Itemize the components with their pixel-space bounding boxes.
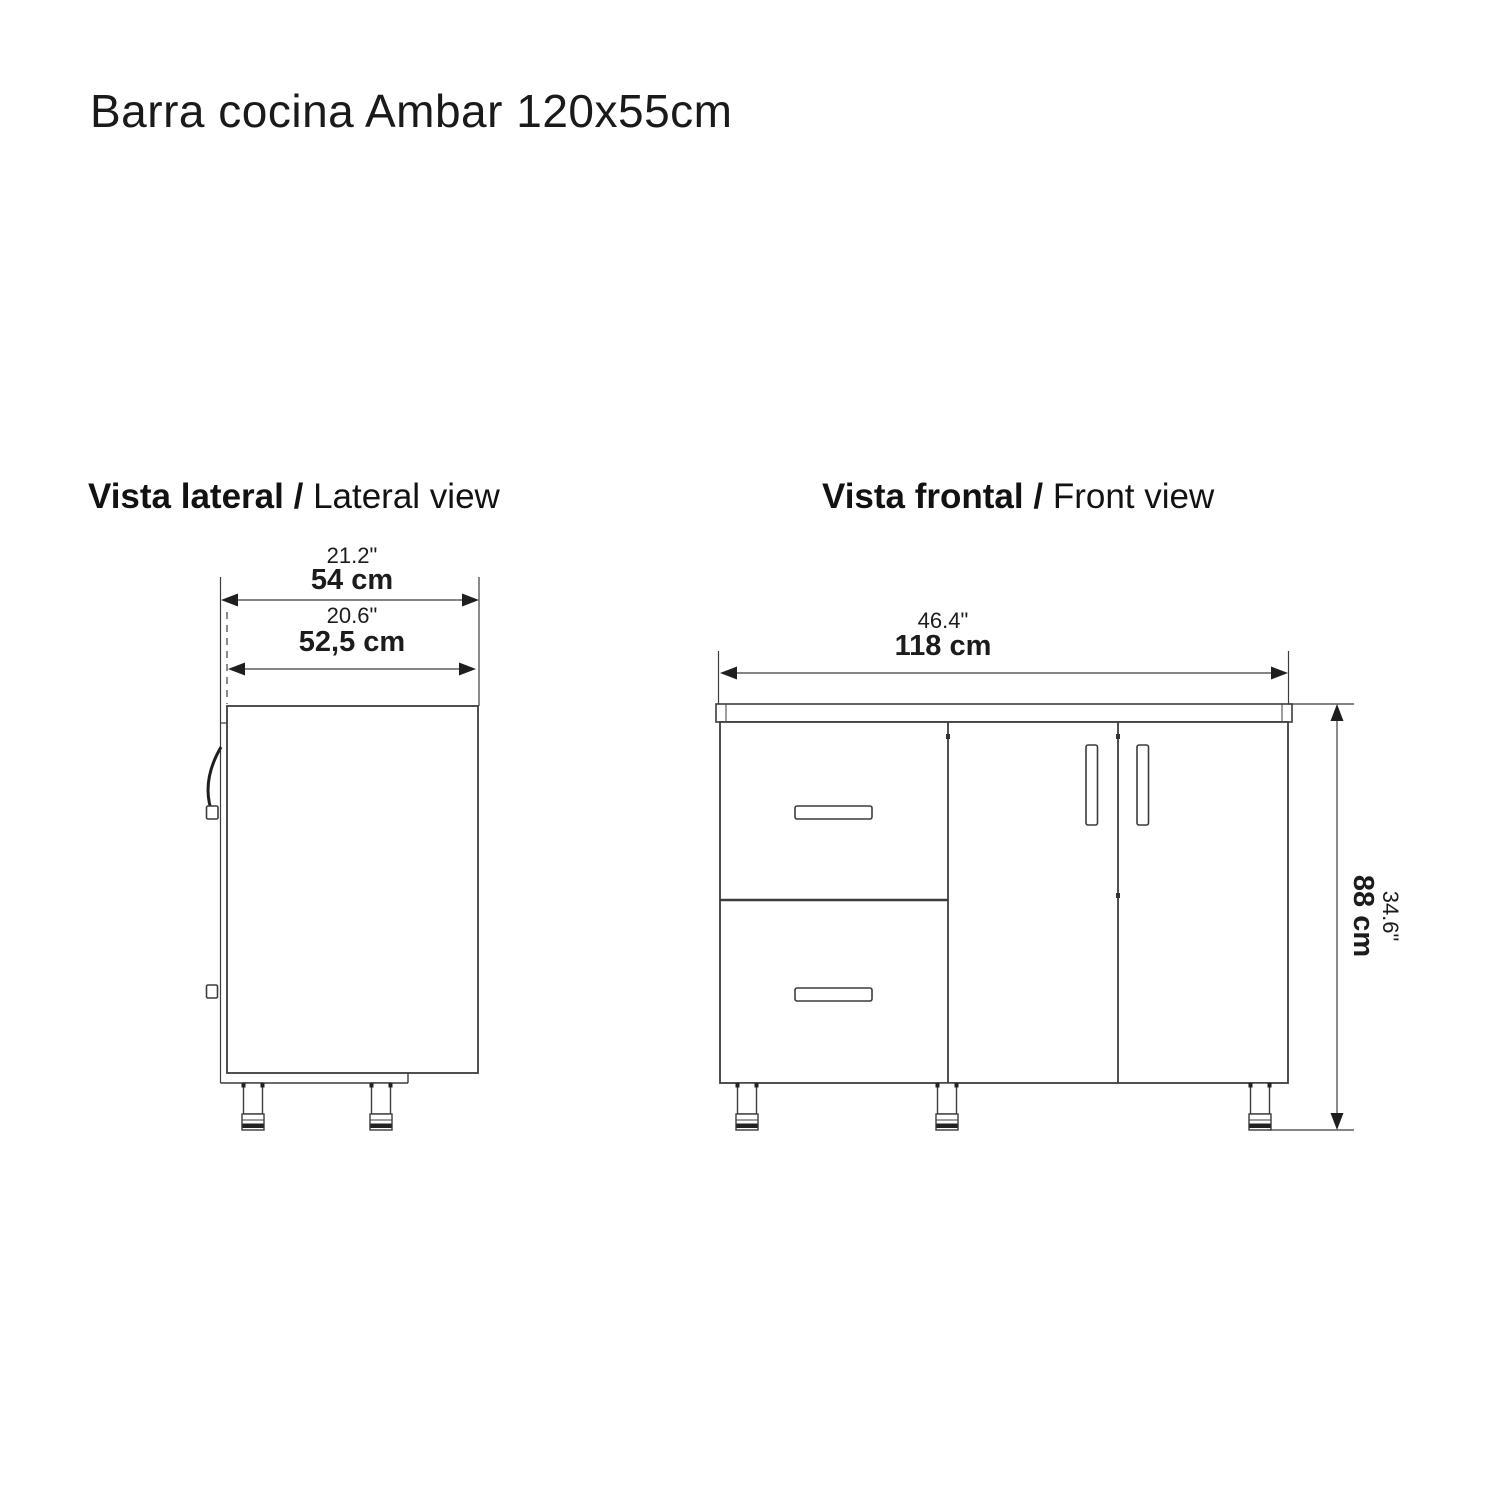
lateral-inner-depth-inches-label: 20.6" (222, 604, 482, 627)
frontal-height-dimension-label: 34.6" 88 cm (1346, 816, 1402, 1016)
lateral-drawer-handle-profile-upper (207, 806, 219, 819)
lateral-view-heading-regular: Lateral view (313, 477, 500, 516)
frontal-height-dimension-arrow (1331, 704, 1344, 1130)
frontal-width-dimension-arrow (720, 667, 1288, 680)
frontal-width-inches-label: 46.4" (813, 609, 1073, 632)
diagram-canvas: Barra cocina Ambar 120x55cm Vista latera… (0, 0, 1500, 1500)
technical-drawing (0, 0, 1500, 1500)
frontal-divider-top-mark-1 (946, 734, 950, 739)
frontal-divider-top-mark-2 (1116, 734, 1120, 739)
lateral-view-drawing (207, 577, 480, 1130)
frontal-leg-right (1249, 1083, 1272, 1130)
lateral-drawer-handle-profile-lower (207, 985, 218, 998)
frontal-view-heading-regular: Front view (1053, 477, 1214, 516)
frontal-height-inches-label: 34.6" (1378, 816, 1402, 1016)
frontal-leg-left (736, 1083, 759, 1130)
lateral-door-handle-arc (208, 747, 221, 815)
lateral-inner-depth-cm-label: 52,5 cm (222, 627, 482, 657)
lateral-inner-depth-dimension-arrow (228, 663, 476, 676)
frontal-drawer-handle-lower (795, 988, 872, 1001)
frontal-view-drawing (716, 651, 1354, 1130)
frontal-leg-center (936, 1083, 959, 1130)
frontal-right-door-handle (1137, 745, 1149, 825)
lateral-view-heading-bold: Vista lateral / (88, 477, 303, 516)
frontal-middle-door-handle (1086, 745, 1098, 825)
frontal-view-heading-bold: Vista frontal / (822, 477, 1043, 516)
frontal-divider-mid-mark (1116, 893, 1120, 898)
frontal-view-heading: Vista frontal / Front view (822, 477, 1214, 517)
lateral-depth-cm-label: 54 cm (222, 565, 482, 595)
lateral-leg-back (370, 1083, 393, 1130)
frontal-height-cm-label: 88 cm (1346, 816, 1378, 1016)
frontal-countertop (716, 704, 1292, 722)
lateral-cabinet-body (227, 706, 478, 1073)
frontal-width-cm-label: 118 cm (813, 631, 1073, 661)
lateral-leg-front (242, 1083, 265, 1130)
frontal-cabinet-body (720, 722, 1288, 1083)
lateral-view-heading: Vista lateral / Lateral view (88, 477, 500, 517)
page-title: Barra cocina Ambar 120x55cm (90, 84, 732, 138)
frontal-drawer-handle-upper (795, 806, 872, 819)
